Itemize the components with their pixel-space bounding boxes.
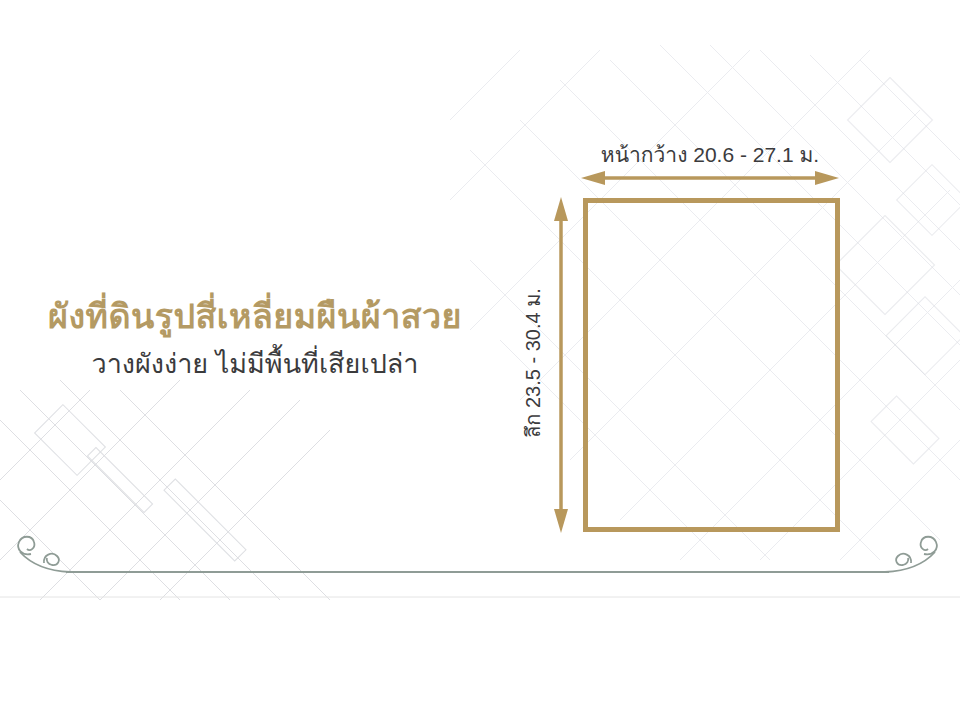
width-dimension-arrow-icon (579, 168, 841, 188)
decorative-divider (0, 530, 960, 610)
divider-flourish-right (885, 537, 937, 572)
title-block: ผังที่ดินรูปสี่เหลี่ยมผืนผ้าสวย วางผังง่… (18, 292, 492, 382)
slide-canvas: ผังที่ดินรูปสี่เหลี่ยมผืนผ้าสวย วางผังง่… (0, 0, 960, 720)
depth-dimension-label: ลึก 23.5 - 30.4 ม. (518, 263, 548, 463)
width-dimension-label: หน้ากว้าง 20.6 - 27.1 ม. (570, 138, 850, 171)
depth-dimension-arrow-icon (550, 195, 572, 535)
slide-title: ผังที่ดินรูปสี่เหลี่ยมผืนผ้าสวย (18, 292, 492, 341)
land-plot-rectangle (583, 198, 840, 532)
slide-subtitle: วางผังง่าย ไม่มีพื้นที่เสียเปล่า (18, 347, 492, 382)
divider-flourish-left (18, 537, 70, 572)
